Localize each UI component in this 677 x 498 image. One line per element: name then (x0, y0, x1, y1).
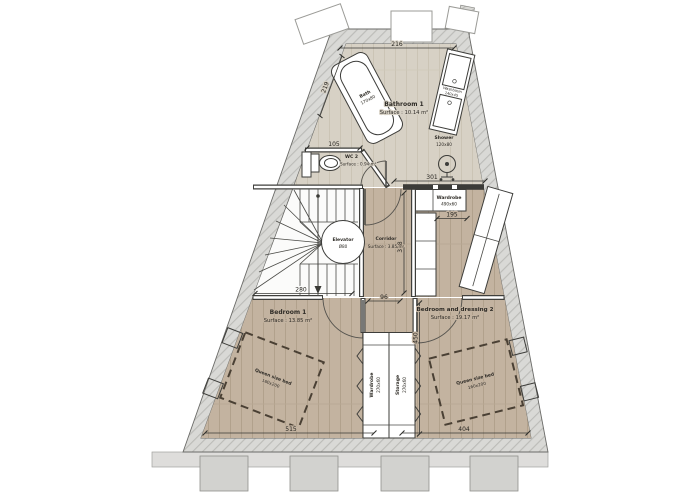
svg-text:404: 404 (458, 426, 470, 433)
svg-text:270x60: 270x60 (376, 377, 381, 393)
bedroom2-name: Bedroom and dressing 2 (417, 307, 494, 313)
svg-text:515: 515 (285, 426, 297, 433)
floor-plan-page: Elevator Ø80 Wardrobe 490x60 (0, 0, 677, 498)
svg-text:Storage: Storage (395, 375, 401, 395)
corridor-surface: Surface : 3.85 m² (368, 244, 405, 249)
bathroom1-name: Bathroom 1 (384, 101, 423, 108)
corridor-name: Corridor (376, 236, 398, 242)
dormer-center (391, 11, 432, 42)
wardrobe-unit-size: 490x60 (441, 202, 457, 207)
svg-text:450: 450 (413, 332, 420, 344)
svg-text:270x60: 270x60 (402, 377, 407, 393)
elevator-label: Elevator (332, 237, 354, 243)
shower-size: 120x80 (436, 142, 452, 147)
storage-strips: Wardrobe 270x60 Storage 270x60 (357, 333, 421, 439)
svg-text:Wardrobe: Wardrobe (369, 373, 375, 398)
corridor-extension-floor (363, 298, 415, 333)
bathroom1-surface: Surface : 10.14 m² (380, 110, 428, 116)
bedroom1-name: Bedroom 1 (270, 309, 307, 316)
wardrobe-wall (403, 184, 484, 190)
svg-text:280: 280 (295, 287, 307, 294)
floor-plan-drawing: Elevator Ø80 Wardrobe 490x60 (0, 0, 677, 498)
bedroom1-surface: Surface : 13.85 m² (264, 318, 312, 324)
wc2-surface: Surface : 0.94 m² (340, 162, 377, 167)
svg-text:216: 216 (391, 41, 403, 48)
shower-label: Shower (435, 135, 455, 141)
bedroom2-surface: Surface : 19.17 m² (431, 315, 479, 321)
svg-text:96: 96 (380, 294, 388, 301)
elevator-size: Ø80 (339, 244, 348, 249)
svg-text:301: 301 (426, 174, 438, 181)
svg-text:105: 105 (328, 141, 340, 148)
svg-text:195: 195 (446, 212, 458, 219)
wc2-name: WC 2 (345, 154, 358, 160)
wardrobe-unit-label: Wardrobe (437, 195, 462, 201)
closet-left (416, 213, 437, 296)
